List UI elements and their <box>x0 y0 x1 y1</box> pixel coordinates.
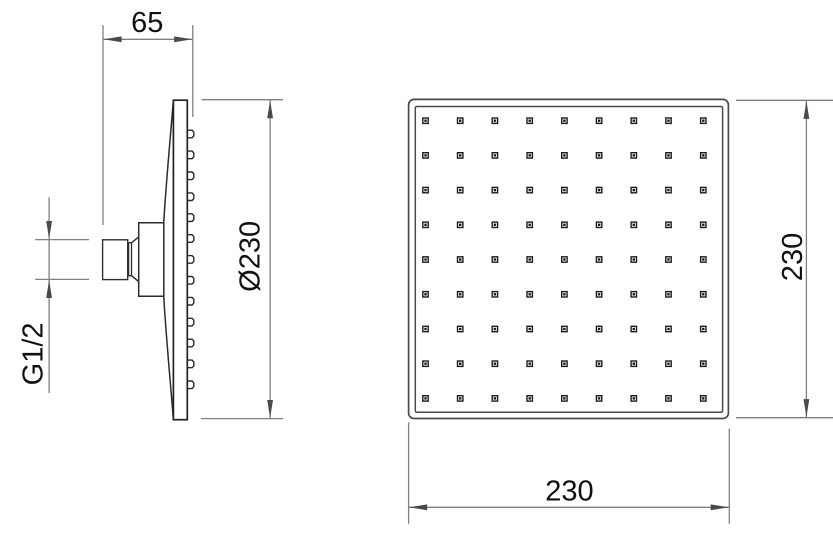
svg-text:Ø230: Ø230 <box>235 221 267 292</box>
svg-text:230: 230 <box>545 475 593 507</box>
svg-text:G1/2: G1/2 <box>18 322 50 385</box>
svg-text:65: 65 <box>131 7 163 39</box>
svg-text:230: 230 <box>777 233 809 281</box>
